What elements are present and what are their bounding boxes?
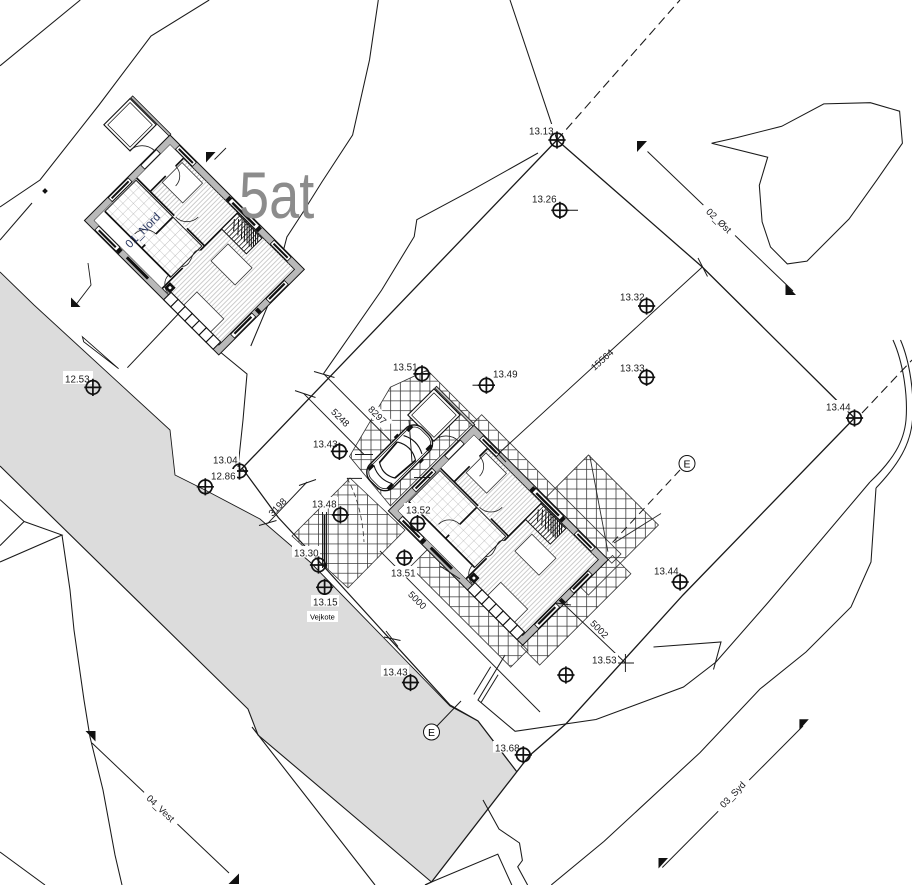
svg-text:Vejkote: Vejkote [310, 613, 335, 622]
svg-text:13.49: 13.49 [493, 369, 518, 380]
svg-text:13.13: 13.13 [529, 126, 554, 137]
svg-text:13.51: 13.51 [391, 568, 416, 579]
svg-text:3198: 3198 [267, 496, 290, 519]
svg-text:13.52: 13.52 [406, 505, 431, 516]
svg-text:E: E [428, 727, 435, 739]
svg-text:5248: 5248 [328, 407, 351, 430]
svg-text:13.30: 13.30 [294, 548, 319, 559]
svg-text:15564: 15564 [589, 347, 616, 373]
svg-text:13.15: 13.15 [313, 597, 338, 608]
svg-text:13.44: 13.44 [654, 566, 679, 577]
svg-text:13.53: 13.53 [592, 655, 617, 666]
svg-text:13.26: 13.26 [532, 194, 557, 205]
svg-text:12.86: 12.86 [211, 471, 236, 482]
svg-text:13.51: 13.51 [393, 362, 418, 373]
svg-text:13.43: 13.43 [313, 439, 338, 450]
svg-text:13.04: 13.04 [213, 455, 238, 466]
svg-text:E: E [683, 459, 690, 471]
svg-text:13.43: 13.43 [383, 667, 408, 678]
svg-text:5at: 5at [239, 158, 314, 232]
svg-text:13.48: 13.48 [312, 499, 337, 510]
svg-text:5000: 5000 [405, 589, 428, 612]
svg-text:13.44: 13.44 [826, 402, 851, 413]
